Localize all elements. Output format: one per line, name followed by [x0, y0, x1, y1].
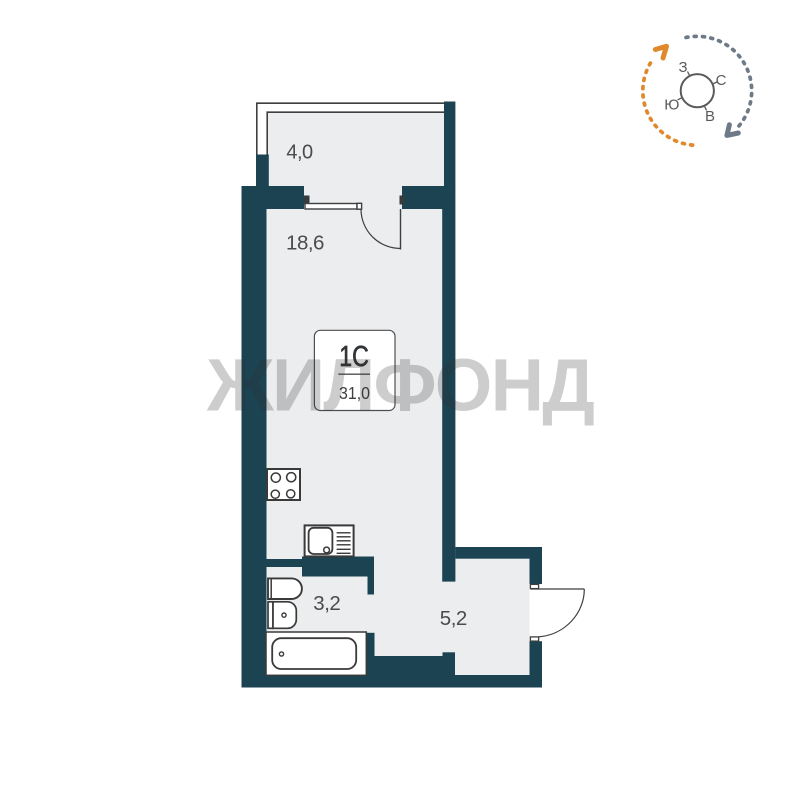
- svg-text:ЖИЛФОНД: ЖИЛФОНД: [206, 344, 594, 427]
- svg-text:Ю: Ю: [664, 97, 679, 114]
- svg-text:5,2: 5,2: [440, 607, 467, 630]
- svg-text:З: З: [678, 59, 687, 76]
- svg-text:18,6: 18,6: [286, 231, 324, 254]
- svg-text:3,2: 3,2: [313, 592, 340, 615]
- svg-text:4,0: 4,0: [286, 142, 313, 164]
- svg-text:В: В: [705, 108, 715, 125]
- svg-text:С: С: [716, 72, 727, 89]
